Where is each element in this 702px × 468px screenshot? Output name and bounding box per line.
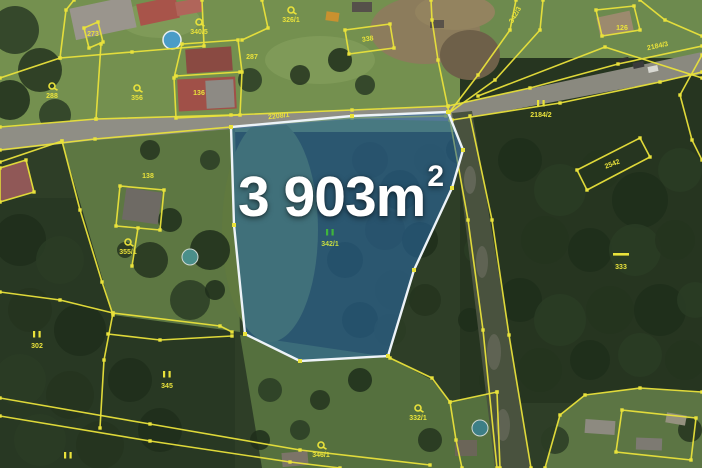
land-use-II-icon — [70, 452, 72, 459]
boundary-vertex — [230, 334, 233, 337]
boundary-vertex — [508, 28, 511, 31]
boundary-vertex — [148, 422, 151, 425]
swimming-pool — [163, 31, 181, 49]
boundary-vertex — [114, 224, 117, 227]
parcel-number-label: 355/1 — [119, 249, 137, 256]
boundary-vertex — [620, 408, 623, 411]
parcel-vertex — [446, 110, 450, 114]
boundary-vertex — [174, 116, 177, 119]
excavator — [325, 11, 339, 22]
boundary-vertex — [288, 460, 291, 463]
land-use-dash-icon — [613, 253, 629, 256]
boundary-vertex — [541, 0, 544, 2]
boundary-vertex — [514, 0, 517, 2]
boundary-vertex — [603, 45, 606, 48]
parcel-vertex — [243, 332, 247, 336]
boundary-vertex — [130, 264, 133, 267]
boundary-vertex — [98, 426, 101, 429]
boundary-vertex — [118, 184, 121, 187]
boundary-vertex — [238, 70, 241, 73]
boundary-vertex — [638, 386, 641, 389]
swimming-pool — [182, 249, 198, 265]
boundary-vertex — [218, 324, 221, 327]
shed — [585, 419, 616, 435]
boundary-vertex — [87, 46, 90, 49]
boundary-vertex — [64, 8, 67, 11]
boundary-vertex — [638, 28, 641, 31]
boundary-vertex — [507, 333, 510, 336]
machinery — [352, 2, 372, 12]
boundary-vertex — [32, 190, 35, 193]
boundary-vertex — [678, 93, 681, 96]
boundary-vertex — [93, 137, 96, 140]
boundary-vertex — [0, 200, 2, 203]
cadastral-map: 326/1340/52872882731363562208/1338342/31… — [0, 0, 702, 468]
parcel-number-label: 287 — [246, 54, 258, 61]
parcel-number-label: 356 — [131, 95, 143, 102]
boundary-vertex — [558, 101, 561, 104]
boundary-vertex — [24, 158, 27, 161]
boundary-vertex — [476, 94, 479, 97]
shed — [281, 451, 308, 467]
boundary-vertex — [72, 0, 75, 2]
parcel-number-label: 332/1 — [409, 415, 427, 422]
boundary-vertex — [495, 390, 498, 393]
boundary-vertex — [102, 358, 105, 361]
boundary-vertex — [689, 458, 692, 461]
boundary-vertex — [448, 400, 451, 403]
boundary-vertex — [538, 28, 541, 31]
parcel-vertex — [232, 223, 236, 227]
boundary-vertex — [236, 38, 239, 41]
boundary-vertex — [148, 439, 151, 442]
boundary-vertex — [658, 80, 661, 83]
boundary-vertex — [466, 218, 469, 221]
boundary-vertex — [600, 34, 603, 37]
parcel-number-label: 126 — [616, 25, 628, 32]
boundary-vertex — [392, 46, 395, 49]
land-use-II-icon — [326, 229, 328, 236]
shed — [636, 438, 662, 451]
map-canvas: 326/1340/52872882731363562208/1338342/31… — [0, 0, 702, 468]
boundary-vertex — [0, 166, 2, 169]
boundary-vertex — [575, 168, 578, 171]
land-use-II-icon — [543, 100, 545, 107]
boundary-vertex — [99, 42, 102, 45]
boundary-vertex — [260, 0, 263, 2]
parcel-number-label: 138 — [142, 173, 154, 180]
boundary-vertex — [0, 290, 2, 293]
boundary-vertex — [240, 38, 243, 41]
parcel-vertex — [412, 268, 416, 272]
boundary-vertex — [136, 226, 139, 229]
boundary-vertex — [266, 26, 269, 29]
boundary-vertex — [558, 413, 561, 416]
boundary-vertex — [614, 450, 617, 453]
boundary-vertex — [0, 160, 2, 163]
parcel-number-label: 345 — [161, 383, 173, 390]
parcel-vertex — [461, 148, 465, 152]
boundary-vertex — [180, 42, 183, 45]
boundary-vertex — [0, 76, 2, 79]
boundary-vertex — [0, 414, 2, 417]
boundary-vertex — [202, 44, 205, 47]
boundary-vertex — [130, 50, 133, 53]
parcel-label-group: 273 — [87, 31, 99, 38]
boundary-vertex — [690, 138, 693, 141]
boundary-vertex — [58, 56, 61, 59]
boundary-vertex — [78, 208, 81, 211]
parcel-vertex — [450, 186, 454, 190]
boundary-vertex — [454, 438, 457, 441]
boundary-vertex — [350, 108, 353, 111]
land-use-II-icon — [33, 331, 35, 338]
boundary-vertex — [616, 62, 619, 65]
boundary-vertex — [94, 117, 97, 120]
land-use-II-icon — [163, 371, 165, 378]
parcel-label-group: 138 — [142, 173, 154, 180]
boundary-vertex — [583, 393, 586, 396]
boundary-vertex — [111, 311, 114, 314]
parcel-vertex — [229, 125, 233, 129]
boundary-vertex — [638, 136, 641, 139]
land-use-II-icon — [169, 371, 171, 378]
boundary-vertex — [430, 18, 433, 21]
boundary-vertex — [158, 228, 161, 231]
parcel-label-group: 136 — [193, 90, 205, 97]
boundary-vertex — [0, 125, 2, 128]
boundary-vertex — [58, 298, 61, 301]
boundary-vertex — [528, 86, 531, 89]
boundary-vertex — [60, 139, 63, 142]
boundary-vertex — [238, 113, 241, 116]
boundary-vertex — [100, 280, 103, 283]
boundary-vertex — [429, 0, 432, 2]
boundary-vertex — [428, 463, 431, 466]
boundary-vertex — [298, 448, 301, 451]
parcel-label-group: 287 — [246, 54, 258, 61]
building — [122, 188, 162, 225]
boundary-vertex — [0, 396, 2, 399]
parcel-vertex — [298, 359, 302, 363]
boundary-vertex — [585, 188, 588, 191]
parcel-number-label: 302 — [31, 343, 43, 350]
land-use-II-icon — [332, 229, 334, 236]
parcel-number-label: 288 — [46, 93, 58, 100]
boundary-vertex — [594, 8, 597, 11]
boundary-vertex — [347, 52, 350, 55]
parcel-number-label: 273 — [87, 31, 99, 38]
boundary-vertex — [96, 20, 99, 23]
parcel-vertex — [350, 114, 354, 118]
boundary-vertex — [481, 328, 484, 331]
parcel-number-label: 342/1 — [321, 241, 339, 248]
parcel-label-group: 126 — [616, 25, 628, 32]
boundary-vertex — [638, 0, 641, 2]
land-use-II-icon — [64, 452, 66, 459]
boundary-vertex — [343, 28, 346, 31]
boundary-vertex — [430, 376, 433, 379]
land-use-II-icon — [537, 100, 539, 107]
swimming-pool — [472, 420, 488, 436]
boundary-vertex — [230, 330, 233, 333]
boundary-vertex — [436, 58, 439, 61]
boundary-vertex — [174, 74, 177, 77]
boundary-vertex — [388, 22, 391, 25]
building — [205, 79, 234, 108]
parcel-number-label: 326/1 — [282, 17, 300, 24]
boundary-vertex — [200, 0, 203, 2]
boundary-vertex — [468, 114, 471, 117]
boundary-vertex — [162, 188, 165, 191]
boundary-vertex — [663, 18, 666, 21]
parcel-number-label: 340/5 — [190, 29, 208, 36]
boundary-vertex — [82, 26, 85, 29]
boundary-vertex — [694, 416, 697, 419]
parcel-number-label: 2184/2 — [530, 112, 552, 119]
boundary-vertex — [493, 78, 496, 81]
boundary-vertex — [490, 218, 493, 221]
building — [185, 46, 233, 73]
boundary-vertex — [476, 73, 479, 76]
boundary-vertex — [632, 4, 635, 7]
parcel-number-label: 346/1 — [312, 452, 330, 459]
land-use-II-icon — [39, 331, 41, 338]
parcel-vertex — [386, 354, 390, 358]
parcel-number-label: 333 — [615, 264, 627, 271]
boundary-vertex — [0, 148, 2, 151]
boundary-vertex — [158, 338, 161, 341]
parcel-number-label: 136 — [193, 90, 205, 97]
boundary-vertex — [648, 155, 651, 158]
